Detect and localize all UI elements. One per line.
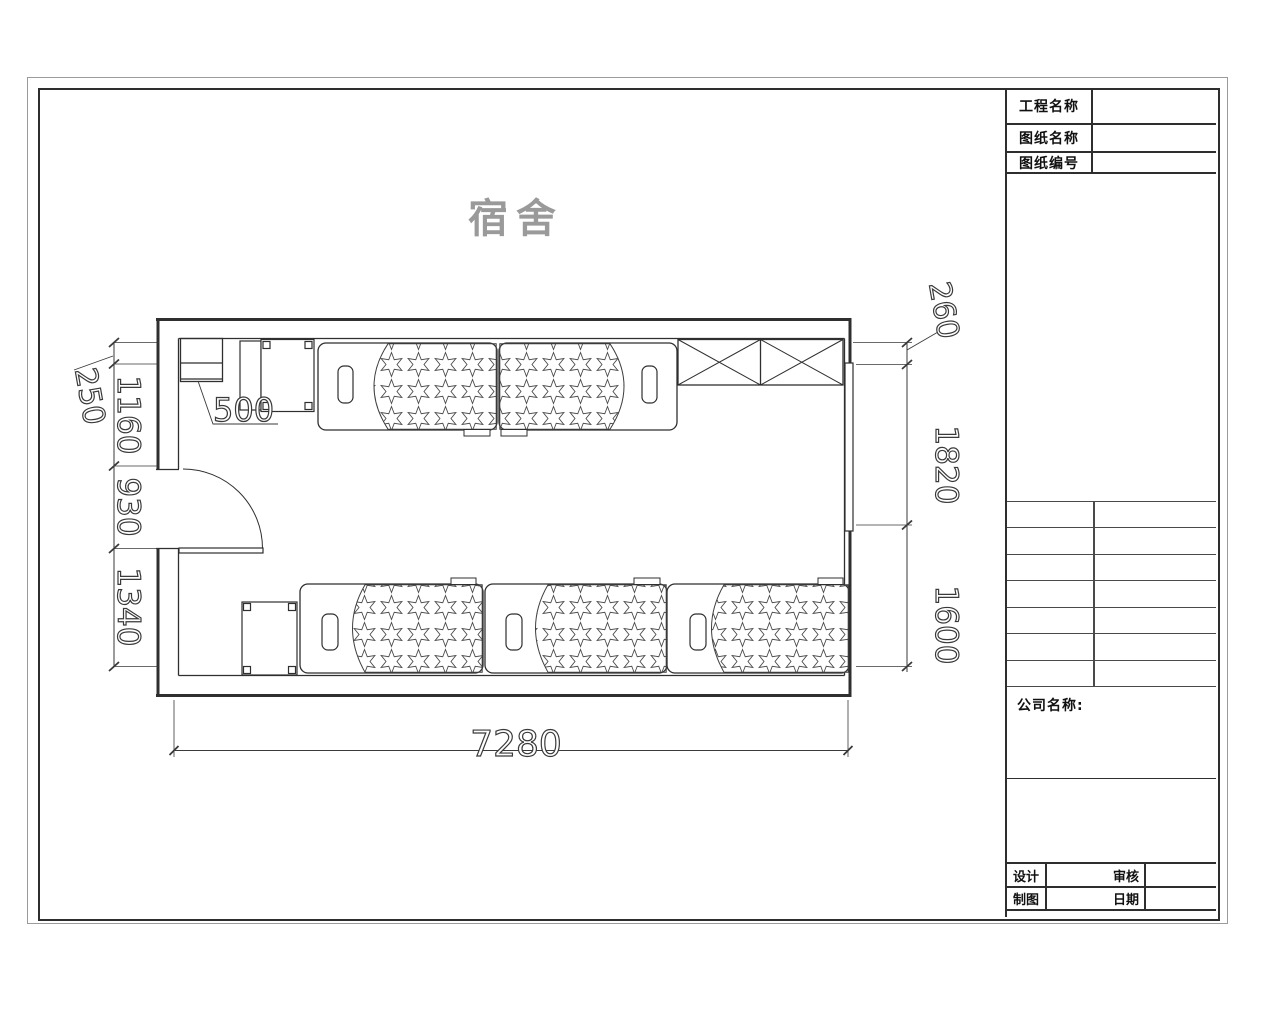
date-label: 日期 [1047,888,1146,909]
date-value [1146,888,1216,909]
dim-left-1160: 1160 [110,376,146,455]
window-strip [845,363,853,531]
sheet-name-value [1093,125,1216,151]
project-name-value [1093,88,1216,123]
door-swing-arc [183,469,263,549]
draft-label: 制图 [1007,888,1047,909]
project-name-label: 工程名称 [1007,88,1093,123]
nightstand-bottom [242,602,297,675]
bed-blankets [353,344,849,672]
title-block-grid-divider [1093,501,1095,687]
desk-shelf [181,339,223,382]
title-block-grid [1007,501,1216,687]
sheet-name-label: 图纸名称 [1007,125,1093,151]
design-label: 设计 [1007,864,1047,886]
wardrobe [678,340,843,386]
dim-leader-500: 500 [213,391,274,429]
dimension-right [853,332,938,672]
dim-left-1340: 1340 [110,568,146,647]
door [179,469,263,553]
dim-left-930: 930 [110,477,146,536]
bed-foot-tabs [451,430,843,585]
title-block-row-sheet-name: 图纸名称 [1007,125,1216,153]
title-block: 工程名称 图纸名称 图纸编号 公司名称: 设计 审核 制图 日期 [1005,88,1216,917]
sheet-no-label: 图纸编号 [1007,153,1093,172]
dim-right-1600: 1600 [928,586,964,665]
title-block-spacer [1007,779,1216,864]
title-block-row-sheet-no: 图纸编号 [1007,153,1216,174]
company-name-cell: 公司名称: [1007,687,1216,779]
dim-right-260: 260 [921,279,965,341]
sign-row-draft: 制图 日期 [1007,888,1216,911]
review-value [1146,864,1216,886]
sign-row-design: 设计 审核 [1007,864,1216,888]
door-leaf [179,548,263,553]
dim-bottom-7280: 7280 [470,724,562,765]
dim-left-250: 250 [67,365,111,427]
dim-right-1820: 1820 [928,426,964,505]
title-block-row-project: 工程名称 [1007,88,1216,125]
review-label: 审核 [1047,864,1146,886]
sheet-no-value [1093,153,1216,172]
company-name-label: 公司名称: [1017,698,1084,714]
